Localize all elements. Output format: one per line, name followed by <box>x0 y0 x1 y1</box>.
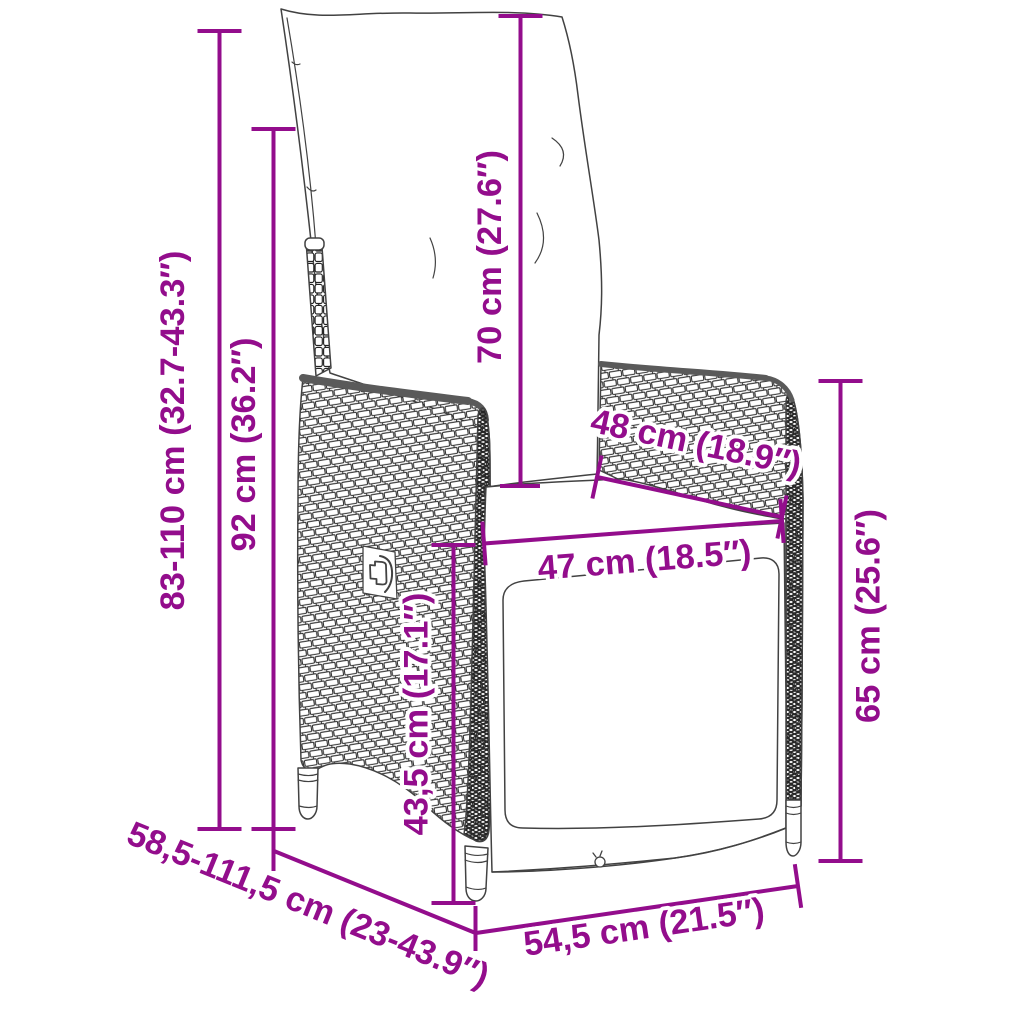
svg-text:65 cm (25.6″): 65 cm (25.6″) <box>850 509 888 723</box>
svg-text:83-110 cm (32.7-43.3″): 83-110 cm (32.7-43.3″) <box>154 251 192 611</box>
svg-text:92 cm (36.2″): 92 cm (36.2″) <box>225 337 263 551</box>
svg-text:43,5 cm (17.1″): 43,5 cm (17.1″) <box>398 593 436 836</box>
svg-text:70 cm (27.6″): 70 cm (27.6″) <box>471 150 509 364</box>
